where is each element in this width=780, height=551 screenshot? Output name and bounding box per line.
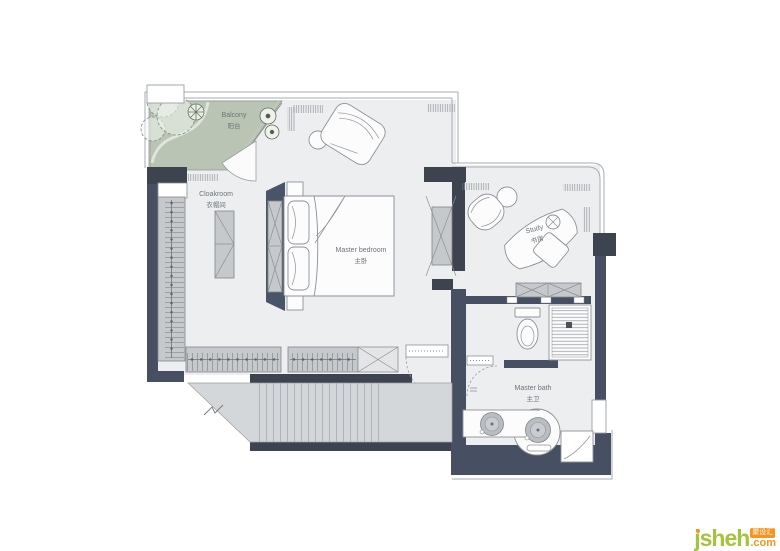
floor-plan-drawing [0,0,780,551]
shower-icon [549,305,591,360]
sink-icon [525,418,551,443]
balcony-label-zh: 阳台 [222,122,247,132]
desk-lamp-icon [546,215,560,229]
bay-window [147,85,184,103]
master-bath-label-zh: 主卫 [515,395,552,405]
sink-icon [480,413,504,436]
pillow-icon [288,201,309,244]
master-bath-label: Master bath 主卫 [515,384,552,404]
master-bedroom-label-en: Master bedroom [336,246,387,257]
wardrobe-bottom [186,347,358,372]
cloak-cabinet [158,183,187,198]
island-dresser [215,211,234,278]
watermark-logo: jsheh 聚设汇 .com [694,528,776,549]
cloakroom-label-en: Cloakroom [199,190,233,201]
bush-icon [188,104,204,120]
pillow-icon [288,247,309,290]
balcony-label-en: Balcony [222,111,247,122]
watermark-brand: jsheh [694,528,749,549]
watermark-brand-text: jsheh [694,525,749,551]
bath-top-cabinet [516,283,581,297]
toilet-icon [515,308,540,349]
cloakroom-label-zh: 衣帽间 [199,201,233,211]
end-cabinet [358,347,398,372]
stair-treads [253,384,381,442]
headboard-cabinet [268,201,282,292]
balcony-label: Balcony 阳台 [222,111,247,131]
nightstand [287,182,303,196]
cloakroom-label: Cloakroom 衣帽间 [199,190,233,210]
watermark-tld: .com [750,538,776,549]
wardrobe-left [158,197,185,361]
vanity-tray [527,445,551,451]
floor-plan-page: { "title": "Master suite floor plan", "r… [0,0,780,551]
bath-window [592,400,606,433]
master-bath-label-en: Master bath [515,384,552,395]
corner-shelf [561,431,593,462]
master-bedroom-label-zh: 主卧 [336,257,387,267]
master-bedroom-label: Master bedroom 主卧 [336,246,387,266]
nightstand [287,296,303,310]
stairs [188,383,452,442]
